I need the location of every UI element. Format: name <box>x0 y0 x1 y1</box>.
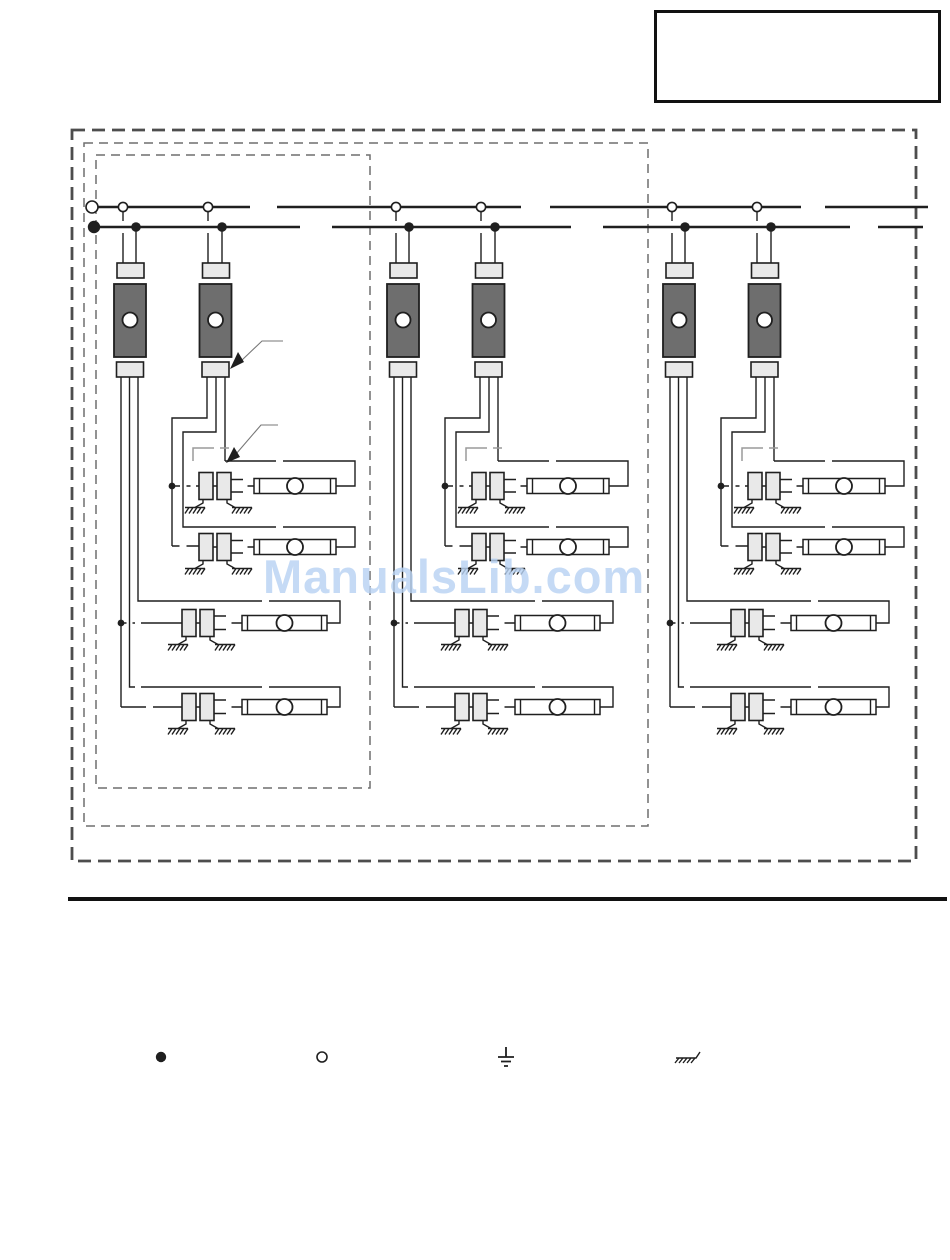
wiring-diagram <box>0 0 950 1260</box>
section-divider <box>68 897 947 901</box>
earth-ground-icon <box>498 1047 514 1066</box>
manual-page: ManualsLib.com <box>0 0 950 1260</box>
lampholder-callout-leader <box>236 425 278 454</box>
circuit-group-1 <box>114 202 355 734</box>
bus-terminal-open <box>86 201 98 213</box>
ballast-connector-callout-leader <box>241 341 283 361</box>
callout-arrows <box>226 341 283 463</box>
open-terminal-icon <box>317 1052 327 1062</box>
chassis-ground-icon <box>675 1052 700 1063</box>
circuit-group-2 <box>387 202 628 734</box>
legend <box>156 1047 700 1066</box>
inner-circuit-boundary <box>96 155 370 788</box>
circuit-group-3 <box>663 202 904 734</box>
bus-terminal-filled <box>88 221 100 233</box>
junction-dot-icon <box>156 1052 166 1062</box>
